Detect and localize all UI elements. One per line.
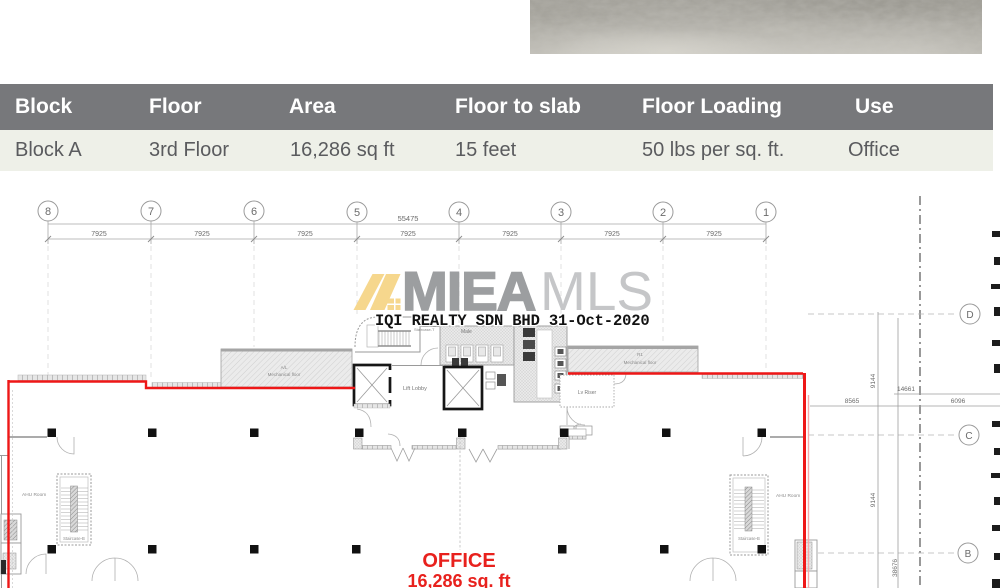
svg-text:IQI REALTY SDN BHD 31-Oct-2020: IQI REALTY SDN BHD 31-Oct-2020: [375, 312, 650, 330]
